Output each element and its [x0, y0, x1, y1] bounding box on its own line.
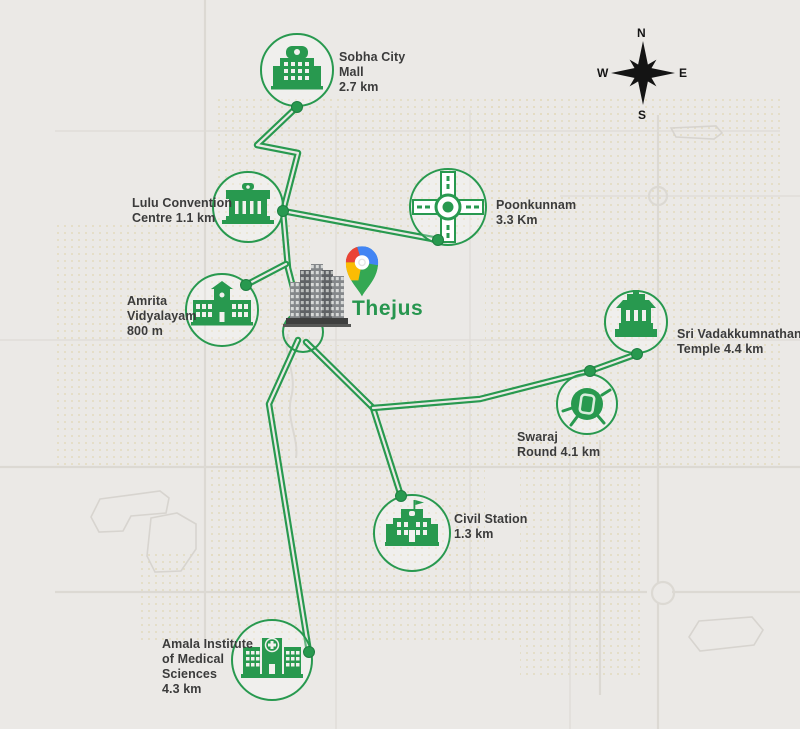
marker-poonkunnam	[410, 169, 486, 246]
project-name: Thejus	[352, 297, 423, 321]
label-civil-station: Civil Station 1.3 km	[454, 512, 528, 542]
label-lulu-convention-centre: Lulu Convention Centre 1.1 km	[132, 196, 232, 226]
location-map: Sobha City Mall 2.7 km Lulu Convention C…	[0, 0, 800, 729]
compass-north-label: N	[637, 26, 646, 40]
label-amala-institute: Amala Institute of Medical Sciences 4.3 …	[162, 637, 253, 697]
map-graphics	[0, 0, 800, 729]
label-amrita-vidyalayam: Amrita Vidyalayam 800 m	[127, 294, 197, 339]
compass-south-label: S	[638, 108, 646, 122]
label-poonkunnam: Poonkunnam 3.3 Km	[496, 198, 576, 228]
compass-east-label: E	[679, 66, 687, 80]
marker-amrita-vidyalayam	[186, 274, 258, 346]
compass-west-label: W	[597, 66, 608, 80]
label-sri-vadakkumnathan-temple: Sri Vadakkumnathan Temple 4.4 km	[677, 327, 800, 357]
google-maps-pin-icon	[342, 243, 382, 297]
background-roundabout-icon	[652, 582, 674, 604]
label-swaraj-round: Swaraj Round 4.1 km	[517, 430, 600, 460]
label-sobha-city-mall: Sobha City Mall 2.7 km	[339, 50, 405, 95]
